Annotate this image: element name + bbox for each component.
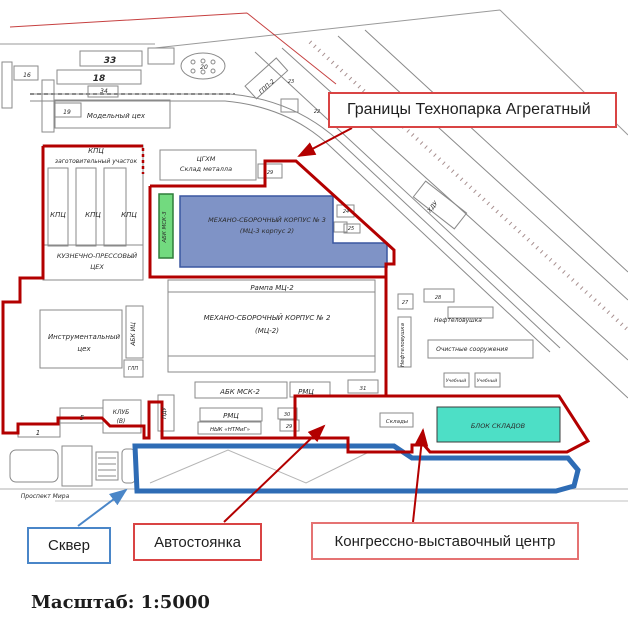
map-label: 20 [200,64,208,71]
map-label: 18 [93,74,106,84]
map-label: 29 [286,424,292,430]
map-label: 24 [343,209,349,215]
map-label: Учебный [446,378,466,384]
map-label: КУЗНЕЧНО-ПРЕССОВЫЙ [57,251,137,260]
skver-callout: Сквер [27,527,111,564]
map-label: Проспект Мира [21,493,70,500]
map-label: 1 [36,429,40,437]
map-label: (МЦ-2) [255,327,279,335]
map-label: 22 [314,109,320,115]
map-label: 23 [288,79,294,85]
parking-arrow [224,426,324,522]
map-label: АБК МСК-3 [162,211,168,244]
skver-arrow [78,490,126,526]
map-label: Склады [386,419,409,425]
map-label: Склад металла [180,165,232,173]
map-label: (МЦ-3 корпус 2) [240,227,294,235]
map-label: 33 [104,56,117,66]
map-label: БЛОК СКЛАДОВ [471,422,526,430]
map-label: 29 [267,170,273,176]
map-label: 27 [402,300,409,306]
map-label: 31 [360,386,367,392]
map-label: КПЦ [85,211,101,219]
map-label: ЦЕХ [90,263,104,271]
map-label: ЦГХМ [197,155,216,163]
map-label: 28 [435,295,441,301]
map-label: Рампа МЦ-2 [250,284,294,292]
map-label: 5 [80,414,85,422]
map-label: КЛУБ [113,409,130,416]
map-label: Модельный цех [87,112,146,120]
parking-callout-label: Автостоянка [154,534,241,551]
map-label: КПЦ [88,147,104,155]
map-label: (В) [117,418,126,425]
map-label: цех [77,345,91,353]
map-label: ПДУ [162,406,168,418]
map-label: ГПП-2 [258,78,276,96]
map-label: 30 [284,412,290,418]
congress-callout-label: Конгрессно-выставочный центр [335,533,556,550]
map-label: Очистные сооружения [436,346,508,353]
map-label: 16 [23,72,31,79]
map-label: Нефтеловушка [434,317,482,324]
map-label: АБК МСК-2 [219,388,260,396]
map-label: АБК ИЦ [130,322,137,347]
map-label: 25 [348,226,354,232]
map-label: РМЦ [223,412,239,420]
map-label: КПЦ [50,211,66,219]
skver-callout-label: Сквер [48,537,90,554]
boundary-callout-label: Границы Технопарка Агрегатный [347,101,591,119]
parking-callout: Автостоянка [133,523,262,561]
map-label: Нефтеловушка [400,322,406,367]
map-label: Учебный [477,378,497,384]
boundary-arrow [299,128,352,156]
map-label: НЫК «НТМиГ» [210,427,251,433]
map-label: КПЦ [121,211,137,219]
map-label: РМЦ [298,388,314,396]
site-plan: 3318163419Модельный цех20ГПП-22322КПЦзаг… [0,0,628,626]
map-label: МЕХАНО-СБОРОЧНЫЙ КОРПУС № 3 [208,215,326,224]
boundary-callout: Границы Технопарка Агрегатный [328,92,617,128]
map-label: МЕХАНО-СБОРОЧНЫЙ КОРПУС № 2 [204,313,331,322]
map-label: ГЛП [128,366,139,372]
map-label: заготовительный участок [55,158,138,165]
congress-callout: Конгрессно-выставочный центр [311,522,579,560]
map-label: Инструментальный [48,333,121,341]
map-label: 34 [100,88,108,95]
scale-label: Масштаб: 1:5000 [31,592,210,613]
map-label: 19 [63,109,71,116]
